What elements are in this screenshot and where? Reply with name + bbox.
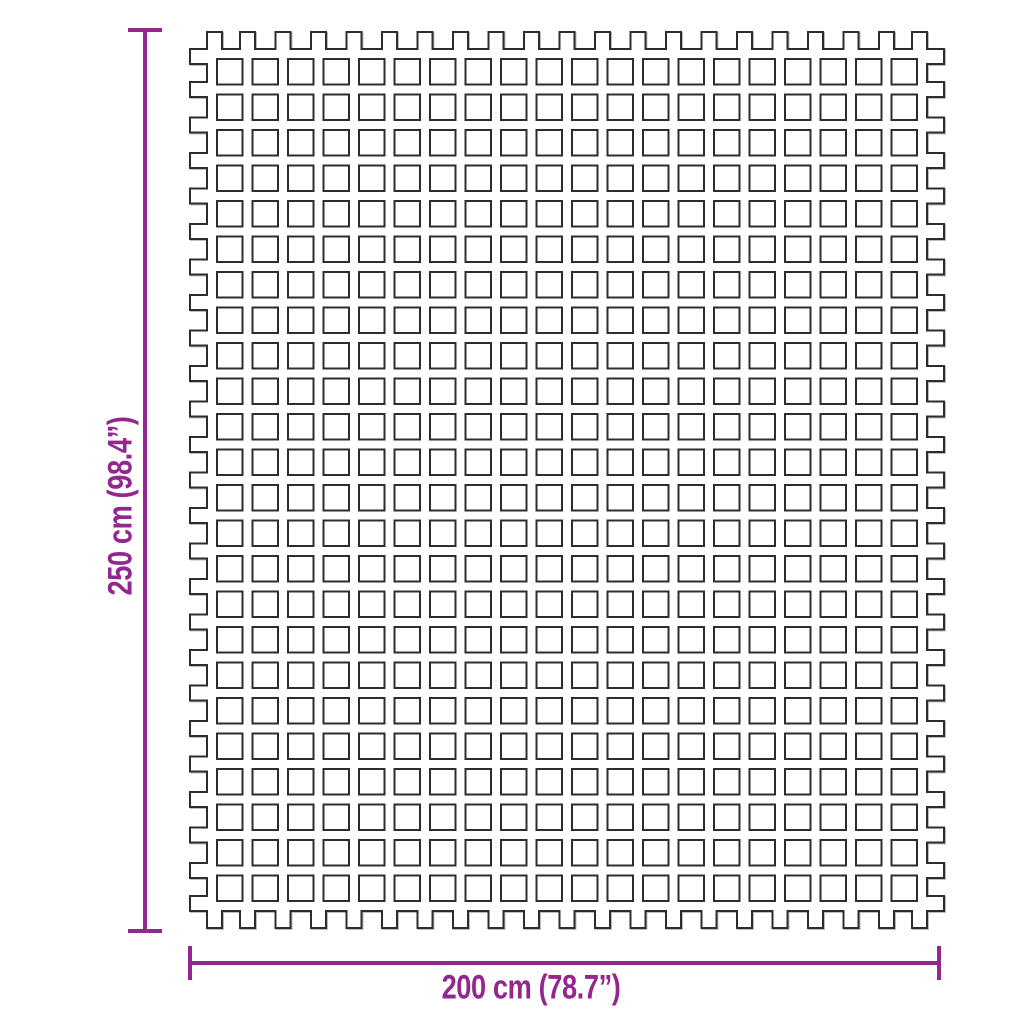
vertical-dimension-line <box>143 30 147 931</box>
horizontal-dimension-line <box>190 961 941 965</box>
horizontal-dimension-cap-left <box>188 946 192 980</box>
horizontal-dimension-cap-right <box>937 946 941 980</box>
vertical-dimension-cap-top <box>128 28 162 32</box>
ground-mat-graphic <box>188 30 946 930</box>
vertical-dimension-label: 250 cm (98.4”) <box>102 417 141 596</box>
vertical-dimension-cap-bottom <box>128 929 162 933</box>
horizontal-dimension-label: 200 cm (78.7”) <box>442 969 621 1008</box>
product-dimension-diagram: 250 cm (98.4”) 200 cm (78.7”) <box>0 0 1024 1024</box>
